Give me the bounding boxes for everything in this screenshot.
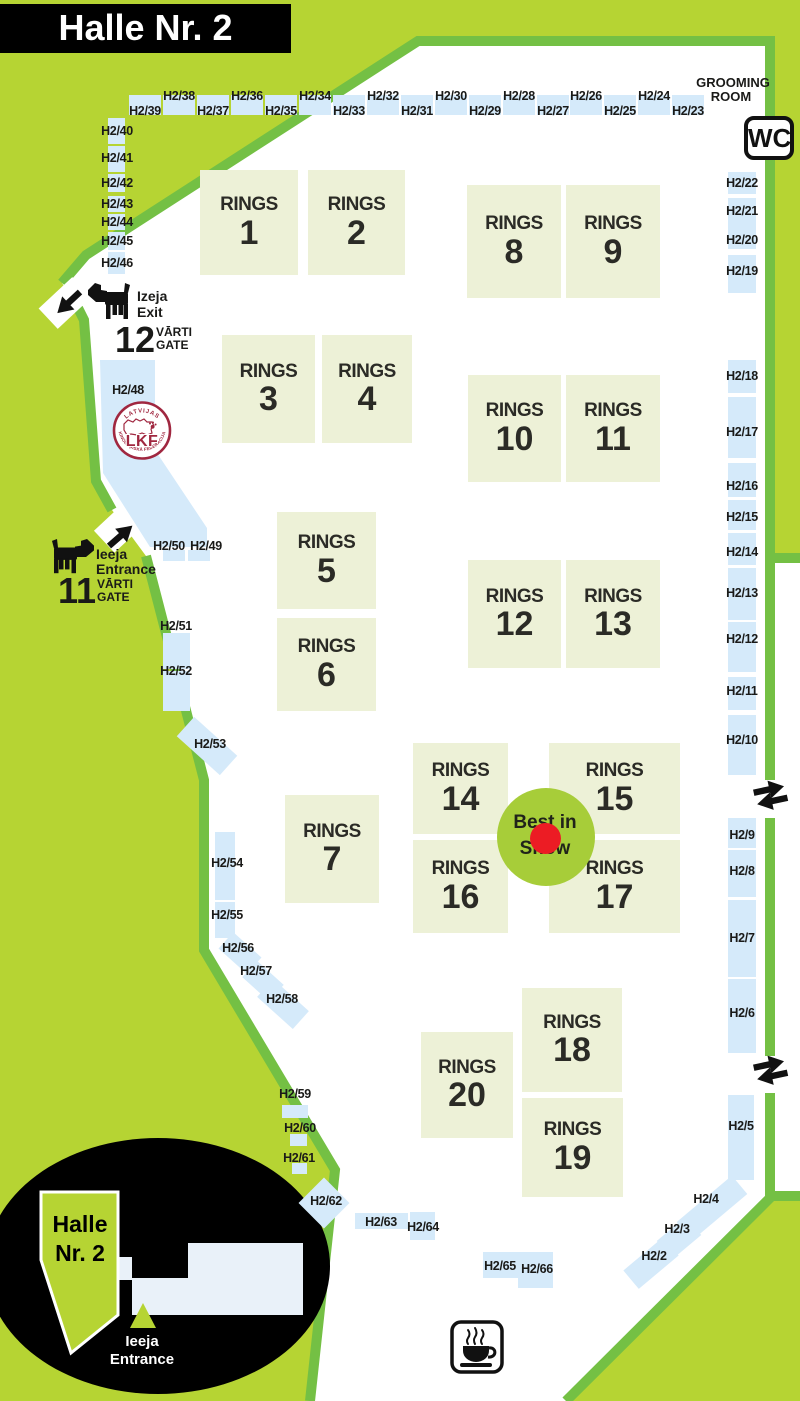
exit-gate-label-en: GATE	[156, 339, 188, 352]
best-in-show-marker	[530, 823, 561, 854]
exit-arrow-icon	[51, 285, 86, 319]
exit-gate-label-lv: VĀRTI	[156, 326, 192, 339]
cafe-icon	[452, 1322, 502, 1372]
inset-entrance-label-lv: Ieeja	[125, 1334, 158, 1350]
page-title-text: Halle Nr. 2	[58, 7, 232, 48]
inset-entrance-label-en: Entrance	[110, 1352, 174, 1368]
entrance-label-en: Entrance	[96, 562, 156, 577]
dog-icon-exit	[88, 283, 130, 319]
inset-hall-label-2: Nr. 2	[55, 1241, 105, 1265]
wc-label: WC	[748, 123, 791, 153]
wc-sign: WC	[744, 116, 794, 160]
passage-arrows-icon-1	[752, 777, 790, 813]
entrance-gate-label-en: GATE	[97, 591, 129, 604]
icons-overlay: LATVIJAS KINOLOĢISKĀ FEDERĀCIJA LKF	[0, 0, 800, 1401]
inset-hall-label-1: Halle	[53, 1212, 108, 1236]
page-title: Halle Nr. 2	[0, 4, 291, 53]
exit-gate-number: 12	[115, 322, 155, 358]
dog-icon-entrance	[52, 539, 94, 573]
entrance-gate-label-lv: VĀRTI	[97, 578, 133, 591]
lkf-center-text: LKF	[126, 433, 159, 450]
passage-arrows-icon-2	[752, 1052, 790, 1088]
grooming-room-label-1: GROOMING	[696, 76, 770, 90]
hall-floor-plan: H2/39H2/38H2/37H2/36H2/35H2/34H2/33H2/32…	[0, 0, 800, 1401]
entrance-label-lv: Ieeja	[96, 547, 127, 562]
entrance-gate-number: 11	[58, 573, 96, 609]
exit-label-lv: Izeja	[137, 289, 167, 304]
grooming-room-label-2: ROOM	[711, 90, 751, 104]
exit-label-en: Exit	[137, 305, 163, 320]
lkf-logo: LATVIJAS KINOLOĢISKĀ FEDERĀCIJA LKF	[114, 403, 170, 459]
